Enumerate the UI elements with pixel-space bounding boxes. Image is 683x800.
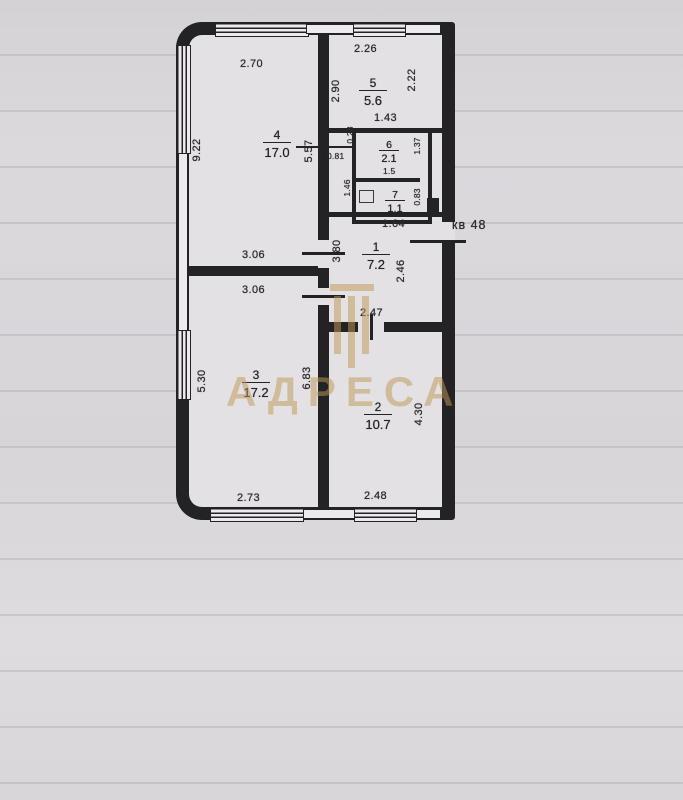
dimension-label: 9.22 bbox=[191, 138, 203, 161]
window-hatch bbox=[176, 330, 191, 400]
dimension-label: 2.48 bbox=[364, 490, 387, 502]
room-area: 17.0 bbox=[248, 146, 306, 159]
dimension-label: 2.70 bbox=[240, 58, 263, 70]
wall-pier bbox=[405, 24, 441, 34]
window-hatch bbox=[354, 507, 417, 522]
dimension-label: 0.83 bbox=[412, 188, 422, 205]
duct bbox=[427, 198, 439, 212]
dimension-label: 3.06 bbox=[242, 284, 265, 296]
room-area: 10.7 bbox=[352, 418, 404, 431]
dimension-label: 5.30 bbox=[196, 369, 208, 392]
scanned-floor-plan: 4 17.0 5 5.6 6 2.1 7 1.1 1 7.2 2 10.7 3 … bbox=[0, 0, 683, 800]
dimension-label: 1.37 bbox=[412, 137, 422, 154]
room-number: 4 bbox=[263, 129, 292, 143]
room-number: 5 bbox=[359, 77, 388, 91]
dimension-label: 2.46 bbox=[395, 259, 407, 282]
dimension-label: 3.80 bbox=[331, 239, 343, 262]
room-label: 4 17.0 bbox=[248, 126, 306, 159]
interior-wall bbox=[356, 178, 420, 182]
wall-pier bbox=[416, 509, 441, 519]
wall-pier bbox=[303, 509, 355, 519]
dimension-label: 2.22 bbox=[406, 68, 418, 91]
wall-pier bbox=[178, 153, 188, 331]
room-area: 7.2 bbox=[352, 258, 400, 271]
entrance-tick bbox=[410, 240, 466, 243]
dimension-label: 1.64 bbox=[382, 218, 405, 230]
window-hatch bbox=[176, 45, 191, 154]
room-area: 1.1 bbox=[376, 204, 414, 215]
dimension-label: 1.43 bbox=[374, 112, 397, 124]
dimension-label: 1.46 bbox=[342, 179, 352, 196]
dimension-label: 3.06 bbox=[242, 249, 265, 261]
room-label: 5 5.6 bbox=[352, 74, 394, 107]
window-hatch bbox=[215, 22, 309, 37]
interior-wall bbox=[189, 266, 318, 276]
room-area: 2.1 bbox=[370, 154, 408, 165]
room-area: 17.2 bbox=[228, 386, 284, 399]
dimension-label: 2.73 bbox=[237, 492, 260, 504]
room-number: 3 bbox=[242, 369, 271, 383]
room-label: 6 2.1 bbox=[370, 135, 408, 165]
room-area: 5.6 bbox=[352, 94, 394, 107]
room-number: 2 bbox=[364, 401, 393, 415]
interior-wall bbox=[318, 35, 329, 507]
room-label: 1 7.2 bbox=[352, 238, 400, 271]
room-number: 6 bbox=[379, 140, 399, 151]
dimension-label: 0.81 bbox=[327, 151, 344, 161]
dimension-label: 2.90 bbox=[330, 79, 342, 102]
room-label: 2 10.7 bbox=[352, 398, 404, 431]
toilet-fixture bbox=[359, 190, 374, 203]
room-label: 3 17.2 bbox=[228, 366, 284, 399]
dimension-label: 6.83 bbox=[301, 366, 313, 389]
window-hatch bbox=[353, 22, 406, 37]
apartment-number-label: кв 48 bbox=[452, 218, 487, 232]
room-number: 7 bbox=[385, 190, 405, 201]
window-hatch bbox=[210, 507, 304, 522]
dimension-label: 2.47 bbox=[360, 307, 383, 319]
door-tick bbox=[302, 295, 345, 298]
wall-pier bbox=[306, 24, 355, 34]
dimension-label: 5.57 bbox=[303, 139, 315, 162]
dimension-label: 0.28 bbox=[345, 126, 355, 143]
room-number: 1 bbox=[362, 241, 391, 255]
dimension-label: 4.30 bbox=[413, 402, 425, 425]
room-label: 7 1.1 bbox=[376, 185, 414, 215]
dimension-label: 2.26 bbox=[354, 43, 377, 55]
dimension-label: 1.5 bbox=[383, 166, 395, 176]
